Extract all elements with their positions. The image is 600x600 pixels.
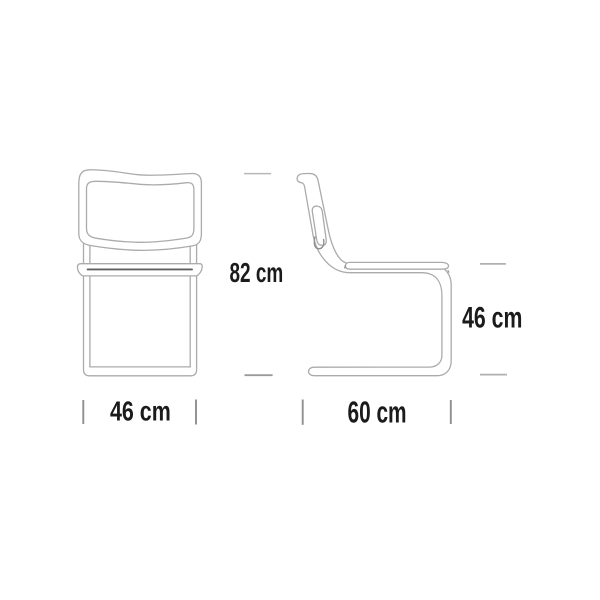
svg-text:60 cm: 60 cm [348, 395, 407, 430]
svg-text:46 cm: 46 cm [110, 396, 171, 427]
svg-text:46 cm: 46 cm [462, 300, 522, 335]
svg-text:82 cm: 82 cm [230, 257, 284, 289]
